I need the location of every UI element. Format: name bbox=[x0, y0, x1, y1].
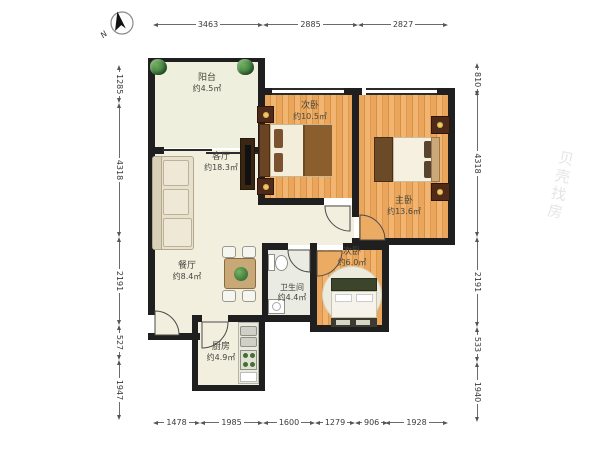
dimension-label: 1940 bbox=[473, 380, 482, 404]
wall bbox=[192, 385, 265, 391]
dimension-left: 4318 bbox=[115, 103, 124, 237]
room-label-balcony: 阳台 约4.5㎡ bbox=[193, 73, 222, 93]
bed bbox=[331, 291, 377, 318]
sofa-back bbox=[153, 157, 162, 249]
tv-screen bbox=[245, 145, 251, 185]
sink-basin bbox=[272, 302, 281, 311]
room-name: 阳台 bbox=[193, 73, 222, 84]
room-label-bedroom3: 次卧 约6.0㎡ bbox=[338, 247, 367, 267]
window bbox=[272, 88, 346, 95]
room-area: 约8.4㎡ bbox=[173, 272, 202, 282]
room-floor-hallway bbox=[262, 205, 354, 245]
bench-cushion bbox=[356, 320, 370, 325]
dimension-bottom: 1928 bbox=[385, 418, 448, 427]
dimension-bottom: 1985 bbox=[200, 418, 263, 427]
dimension-left: 1285 bbox=[115, 65, 124, 103]
pillow bbox=[335, 294, 352, 302]
room-label-kitchen: 厨房 约4.9㎡ bbox=[207, 342, 236, 362]
compass-icon bbox=[111, 11, 133, 34]
toilet-tank bbox=[268, 254, 275, 271]
nightstand bbox=[257, 178, 274, 195]
bed-headboard bbox=[331, 278, 377, 291]
bed-footboard bbox=[331, 318, 377, 327]
bed-blanket bbox=[374, 137, 393, 182]
dimension-label: 3463 bbox=[196, 20, 220, 29]
dimension-bottom: 1478 bbox=[153, 418, 200, 427]
lamp-icon bbox=[437, 122, 443, 128]
burner-icon bbox=[250, 353, 255, 358]
watermark: 贝壳找房 bbox=[543, 149, 579, 224]
room-label-bedroom2: 次卧 约10.5㎡ bbox=[293, 101, 327, 121]
dimension-label: 2191 bbox=[473, 270, 482, 294]
sofa-cushion bbox=[163, 160, 189, 186]
room-label-master-bedroom: 主卧 约13.6㎡ bbox=[387, 196, 421, 216]
dimension-left: 1947 bbox=[115, 360, 124, 420]
dimension-top: 3463 bbox=[153, 20, 263, 29]
dimension-label: 527 bbox=[115, 333, 124, 352]
dimension-right: 810 bbox=[473, 63, 482, 90]
dimension-label: 2827 bbox=[391, 20, 415, 29]
wall bbox=[310, 243, 317, 325]
dimension-label: 1600 bbox=[277, 418, 301, 427]
pillow bbox=[274, 129, 283, 148]
room-label-living-room: 客厅 约18.3㎡ bbox=[204, 152, 238, 172]
room-label-dining-room: 餐厅 约8.4㎡ bbox=[173, 261, 202, 281]
floor-plan: N 阳台 约4.5㎡ 次卧 约10.5㎡ 主卧 约13.6㎡ 客厅 约18.3㎡… bbox=[0, 0, 600, 450]
kitchen-sink bbox=[240, 326, 257, 336]
dimension-top: 2827 bbox=[358, 20, 448, 29]
sofa-cushion bbox=[163, 189, 189, 215]
dimension-label: 810 bbox=[473, 70, 482, 89]
room-name: 餐厅 bbox=[173, 261, 202, 272]
dimension-label: 4318 bbox=[115, 158, 124, 182]
room-name: 厨房 bbox=[207, 342, 236, 353]
nightstand bbox=[431, 116, 450, 134]
lamp-icon bbox=[437, 189, 443, 195]
plant-icon bbox=[150, 59, 167, 75]
dining-chair bbox=[222, 290, 236, 302]
dimension-label: 533 bbox=[473, 335, 482, 354]
bed bbox=[270, 124, 332, 177]
tv-stand bbox=[240, 138, 255, 190]
plant-icon bbox=[237, 59, 254, 75]
pillow bbox=[274, 153, 283, 172]
wall bbox=[382, 243, 389, 332]
dimension-right: 533 bbox=[473, 327, 482, 362]
table-plant-icon bbox=[234, 267, 248, 281]
dimension-label: 1285 bbox=[115, 72, 124, 96]
room-name: 次卧 bbox=[293, 101, 327, 112]
lamp-icon bbox=[263, 184, 269, 190]
dimension-label: 2191 bbox=[115, 269, 124, 293]
dimension-right: 4318 bbox=[473, 90, 482, 237]
dimension-label: 1279 bbox=[323, 418, 347, 427]
room-area: 约18.3㎡ bbox=[204, 163, 238, 173]
dimension-label: 1947 bbox=[115, 378, 124, 402]
dimension-bottom: 1600 bbox=[263, 418, 315, 427]
dimension-left: 527 bbox=[115, 325, 124, 360]
dining-chair bbox=[242, 246, 256, 258]
dining-table bbox=[224, 258, 256, 289]
nightstand bbox=[257, 106, 274, 123]
dimension-right: 2191 bbox=[473, 237, 482, 327]
bed-headboard bbox=[431, 137, 440, 182]
wall bbox=[352, 205, 359, 217]
wall bbox=[262, 243, 288, 250]
room-name: 卫生间 bbox=[278, 283, 307, 293]
room-area: 约6.0㎡ bbox=[338, 258, 367, 268]
dimension-top: 2885 bbox=[263, 20, 358, 29]
room-area: 约10.5㎡ bbox=[293, 112, 327, 122]
burner-icon bbox=[250, 362, 255, 367]
dimension-bottom: 1279 bbox=[315, 418, 355, 427]
dimension-left: 2191 bbox=[115, 237, 124, 325]
dimension-label: 2885 bbox=[298, 20, 322, 29]
dimension-label: 1985 bbox=[219, 418, 243, 427]
burner-icon bbox=[243, 353, 248, 358]
room-area: 约13.6㎡ bbox=[387, 207, 421, 217]
dining-chair bbox=[242, 290, 256, 302]
toilet bbox=[275, 255, 288, 271]
sofa bbox=[152, 156, 194, 250]
wall bbox=[258, 198, 324, 205]
window bbox=[366, 88, 439, 95]
kitchen-counter bbox=[238, 322, 259, 384]
dimension-label: 906 bbox=[362, 418, 381, 427]
nightstand bbox=[431, 183, 450, 201]
room-area: 约4.5㎡ bbox=[193, 84, 222, 94]
sliding-door bbox=[162, 149, 212, 151]
wall bbox=[192, 315, 202, 322]
dimension-bottom: 906 bbox=[355, 418, 385, 427]
bed-headboard bbox=[259, 124, 270, 177]
dimension-right: 1940 bbox=[473, 362, 482, 422]
kitchen-sink bbox=[240, 337, 257, 347]
wall bbox=[352, 88, 359, 205]
pillow bbox=[356, 294, 373, 302]
wall bbox=[448, 88, 455, 245]
wall bbox=[262, 315, 316, 322]
wall bbox=[192, 315, 198, 391]
dimension-label: 4318 bbox=[473, 151, 482, 175]
bed-blanket bbox=[303, 125, 332, 176]
stove bbox=[240, 350, 257, 370]
room-label-bathroom: 卫生间 约4.4㎡ bbox=[278, 283, 307, 302]
lamp-icon bbox=[263, 112, 269, 118]
dining-chair bbox=[222, 246, 236, 258]
room-area: 约4.4㎡ bbox=[278, 293, 307, 303]
dimension-label: 1928 bbox=[404, 418, 428, 427]
room-name: 客厅 bbox=[204, 152, 238, 163]
dimension-label: 1478 bbox=[164, 418, 188, 427]
compass-north-label: N bbox=[99, 29, 109, 40]
room-name: 主卧 bbox=[387, 196, 421, 207]
wall bbox=[259, 315, 265, 391]
kitchen-cabinet bbox=[240, 372, 257, 382]
bed bbox=[393, 137, 432, 182]
room-name: 次卧 bbox=[338, 247, 367, 258]
bench-cushion bbox=[336, 320, 350, 325]
burner-icon bbox=[243, 362, 248, 367]
sofa-cushion bbox=[163, 218, 192, 247]
room-area: 约4.9㎡ bbox=[207, 353, 236, 363]
